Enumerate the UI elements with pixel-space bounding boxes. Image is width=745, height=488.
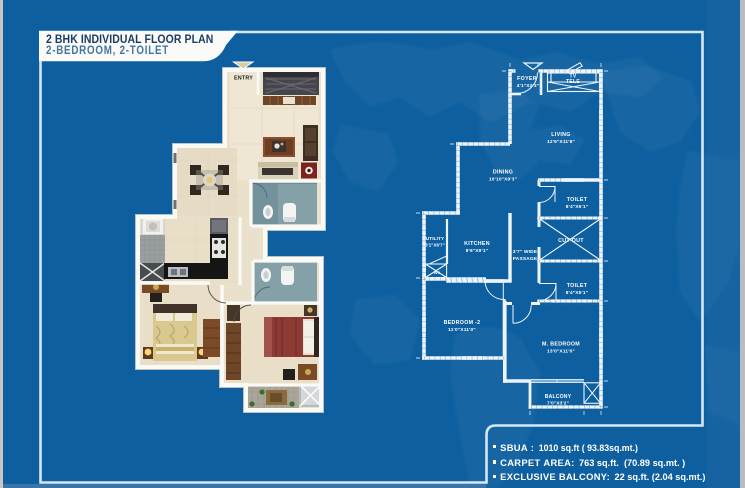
- svg-text:10'10"X9'3": 10'10"X9'3": [489, 177, 517, 183]
- svg-text:8'4"X5'1": 8'4"X5'1": [566, 204, 589, 210]
- svg-text:7'0"X3'2": 7'0"X3'2": [547, 401, 569, 406]
- svg-text:TOILET: TOILET: [567, 283, 588, 289]
- svg-text:DINING: DINING: [493, 170, 513, 176]
- svg-text:BEDROOM -2: BEDROOM -2: [444, 320, 481, 326]
- svg-text:PASSAGE: PASSAGE: [513, 256, 538, 262]
- svg-text:CUT OUT: CUT OUT: [558, 238, 584, 244]
- svg-text:3'1"X6'7": 3'1"X6'7": [425, 243, 445, 248]
- svg-text:TOILET: TOILET: [567, 197, 588, 203]
- svg-text:FOYER: FOYER: [517, 76, 537, 82]
- svg-text:UTILITY: UTILITY: [426, 236, 445, 241]
- svg-text:WS: WS: [434, 270, 441, 275]
- svg-text:KITCHEN: KITCHEN: [464, 241, 490, 247]
- svg-text:BALCONY: BALCONY: [545, 394, 572, 400]
- svg-text:12'6"X11'8": 12'6"X11'8": [547, 139, 575, 145]
- svg-text:4'1"X2'3": 4'1"X2'3": [517, 83, 540, 89]
- svg-text:8'4"X5'1": 8'4"X5'1": [566, 290, 589, 296]
- svg-text:M. BEDROOM: M. BEDROOM: [542, 342, 580, 348]
- svg-text:8'6"X9'1": 8'6"X9'1": [466, 248, 489, 254]
- svg-text:3'7" WIDE: 3'7" WIDE: [513, 249, 538, 255]
- svg-text:13'0"X11'0": 13'0"X11'0": [547, 349, 575, 355]
- svg-text:TELE: TELE: [566, 79, 580, 85]
- svg-text:LIVING: LIVING: [551, 132, 570, 138]
- svg-text:ENTRY: ENTRY: [234, 76, 253, 82]
- svg-text:11'0"X11'0": 11'0"X11'0": [448, 327, 476, 333]
